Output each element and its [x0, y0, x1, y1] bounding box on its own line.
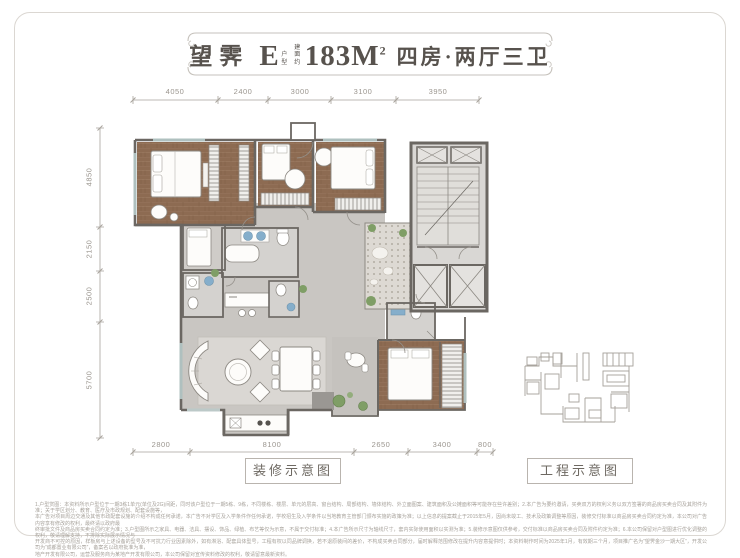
dining-area	[272, 347, 320, 391]
bedroom-3	[315, 142, 384, 212]
master-bathroom	[222, 228, 298, 277]
maid-bathroom	[183, 273, 223, 317]
maid-room	[183, 225, 225, 270]
disclaimer-line: 终审批文件及商品房买卖合同约定为准；3.户型图所示之家具、电器、洁具、摆设、饰品…	[35, 527, 707, 539]
disclaimer-line: 本广告对项目周边交通及其他市政配套设施的介绍不构成任何承诺，本广告不对学区及入学…	[35, 514, 707, 526]
floorplan-decorated	[95, 85, 510, 450]
disclaimer-line: 1.户型赏图：本资料所示户型位于一期3栋1单元(单位及2G)间距，同时该户型位于…	[35, 502, 707, 514]
dim-left-1: 4850	[85, 168, 94, 187]
master-bedroom	[137, 142, 255, 225]
powder-room	[269, 281, 299, 317]
dim-left-4: 5700	[85, 371, 94, 390]
bedroom-2	[258, 142, 313, 207]
entry-courtyard	[365, 223, 411, 309]
disclaimer-line: 开发商不可控的原因，样板房与上述设备的型号及不可抗力行业因素除外，如有淋浴、配套…	[35, 539, 707, 551]
kitchen-counter	[222, 410, 290, 435]
elevator-stair-core	[411, 143, 487, 311]
dim-left-2: 2150	[85, 240, 94, 259]
dim-left-3: 2500	[85, 287, 94, 306]
floorplan-engineering-mini	[517, 350, 649, 444]
caption-engineering-schematic: 工程示意图	[527, 458, 633, 484]
ac-platform	[312, 392, 334, 410]
disclaimer-text: 1.户型赏图：本资料所示户型位于一期3栋1单元(单位及2G)间距，同时该户型位于…	[35, 502, 707, 558]
bedroom-4	[378, 340, 465, 410]
caption-decoration-schematic: 装修示意图	[245, 458, 341, 484]
